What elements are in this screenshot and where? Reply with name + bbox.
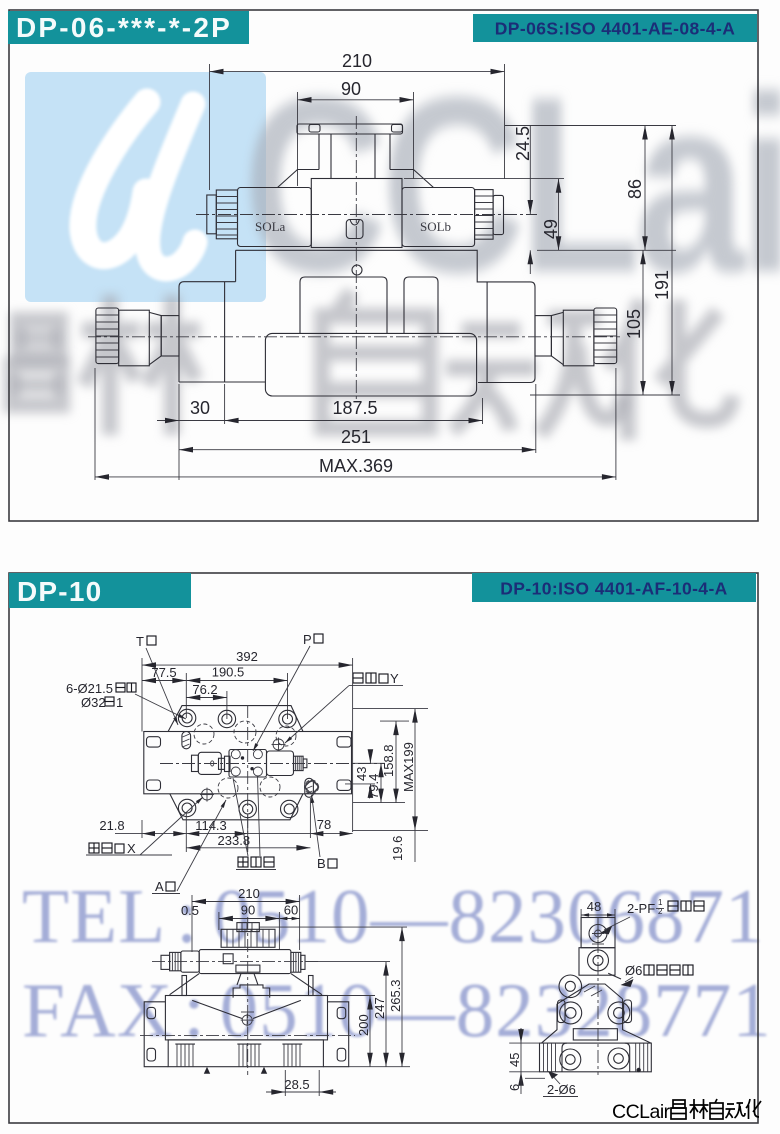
svg-text:105: 105	[624, 309, 644, 339]
svg-text:Ø6: Ø6	[625, 963, 642, 978]
svg-text:265.3: 265.3	[388, 979, 403, 1012]
svg-text:DP-06-***-*-2P: DP-06-***-*-2P	[16, 12, 232, 43]
svg-text:A: A	[155, 879, 164, 894]
svg-text:P: P	[303, 632, 312, 647]
svg-text:B: B	[317, 856, 326, 871]
svg-text:19.6: 19.6	[390, 836, 405, 861]
svg-text:158.8: 158.8	[381, 744, 396, 777]
svg-text:76.2: 76.2	[192, 682, 217, 697]
svg-text:210: 210	[238, 886, 260, 901]
svg-text:2-PF: 2-PF	[627, 901, 655, 916]
svg-text:6-Ø21.5: 6-Ø21.5	[66, 681, 113, 696]
svg-text:MAX.369: MAX.369	[319, 456, 393, 476]
svg-text:60: 60	[284, 903, 298, 918]
svg-text:90: 90	[341, 79, 361, 99]
svg-text:Y: Y	[390, 671, 399, 686]
svg-text:190.5: 190.5	[212, 665, 245, 680]
svg-text:24.5: 24.5	[513, 126, 533, 161]
svg-text:6: 6	[507, 1084, 522, 1091]
svg-text:200: 200	[356, 1014, 371, 1036]
svg-text:392: 392	[236, 649, 258, 664]
svg-text:0.5: 0.5	[181, 903, 199, 918]
svg-text:1: 1	[116, 695, 123, 710]
svg-text:78: 78	[317, 817, 331, 832]
svg-text:191: 191	[652, 270, 672, 300]
svg-text:X: X	[127, 841, 136, 856]
svg-text:48: 48	[587, 899, 601, 914]
svg-text:CCLair: CCLair	[612, 1101, 671, 1123]
svg-text:DP-10: DP-10	[17, 576, 102, 607]
svg-text:Ø32: Ø32	[81, 695, 106, 710]
svg-text:SOLa: SOLa	[255, 219, 286, 234]
svg-text:77.5: 77.5	[151, 665, 176, 680]
svg-text:187.5: 187.5	[332, 398, 377, 418]
svg-text:114.3: 114.3	[195, 818, 227, 833]
svg-text:2-Ø6: 2-Ø6	[547, 1082, 576, 1097]
svg-text:79.4: 79.4	[366, 774, 381, 799]
svg-text:SOLb: SOLb	[420, 219, 451, 234]
svg-text:21.8: 21.8	[99, 818, 124, 833]
svg-text:30: 30	[190, 398, 210, 418]
svg-text:210: 210	[342, 51, 372, 71]
svg-text:49: 49	[541, 219, 561, 239]
svg-text:45: 45	[507, 1053, 522, 1067]
svg-text:90: 90	[241, 903, 255, 918]
svg-text:86: 86	[625, 179, 645, 199]
svg-text:DP-10:ISO 4401-AF-10-4-A: DP-10:ISO 4401-AF-10-4-A	[500, 579, 727, 599]
svg-text:251: 251	[341, 427, 371, 447]
svg-text:1: 1	[658, 898, 663, 907]
svg-text:MAX199: MAX199	[401, 742, 416, 792]
svg-text:247: 247	[372, 997, 387, 1019]
svg-text:T: T	[136, 634, 144, 649]
svg-text:28.5: 28.5	[284, 1077, 309, 1092]
svg-text:DP-06S:ISO 4401-AE-08-4-A: DP-06S:ISO 4401-AE-08-4-A	[495, 19, 736, 39]
